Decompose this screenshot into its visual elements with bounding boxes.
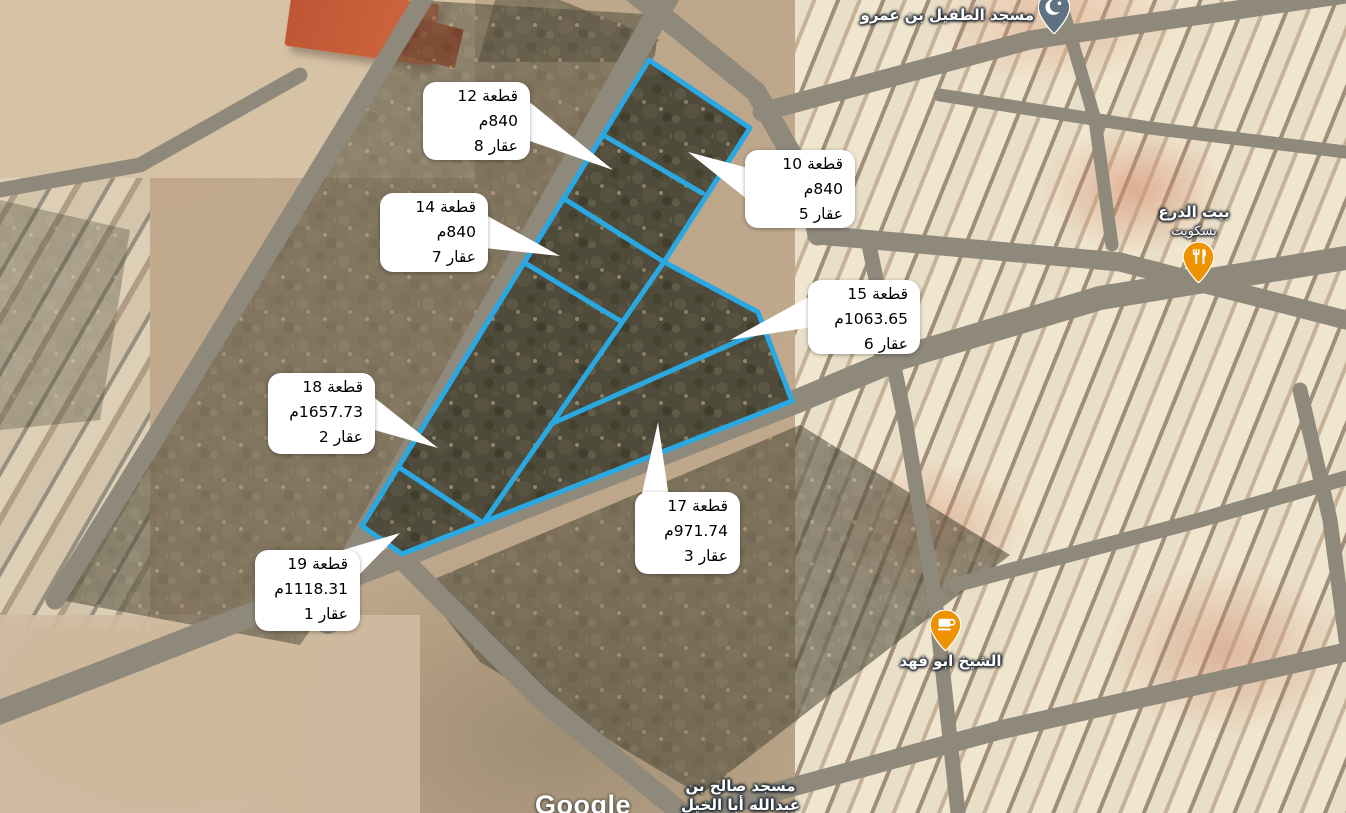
satellite-map[interactable]: قطعة 12 840م عقار 8 قطعة 10 840م عقار 5 … — [0, 0, 1346, 813]
restaurant-pin-icon[interactable] — [1183, 242, 1214, 283]
plot-deed: عقار 6 — [818, 332, 908, 357]
poi-label-sheikh-abu-fahd[interactable]: الشيخ ابو فهد — [893, 652, 1008, 671]
plot-area: 971.74م — [645, 519, 728, 544]
poi-label-mosque-tufail[interactable]: مسجد الطفيل بن عمرو — [861, 6, 1034, 25]
plot-number: قطعة 12 — [433, 84, 518, 109]
mosque-pin-icon[interactable] — [1038, 0, 1070, 34]
poi-label-bait-aldara[interactable]: بيت الدرع بسكويت — [1146, 203, 1242, 241]
plot-area: 840م — [755, 177, 843, 202]
cafe-pin-icon[interactable] — [930, 610, 961, 651]
plot-deed: عقار 8 — [433, 134, 518, 159]
plot-area: 1063.65م — [818, 307, 908, 332]
callout-plot-12: قطعة 12 840م عقار 8 — [423, 82, 530, 160]
plot-deed: عقار 2 — [278, 425, 363, 450]
plot-deed: عقار 7 — [390, 245, 476, 270]
plot-area: 1657.73م — [278, 400, 363, 425]
callout-plot-18: قطعة 18 1657.73م عقار 2 — [268, 373, 375, 454]
plot-area: 1118.31م — [265, 577, 348, 602]
plot-deed: عقار 5 — [755, 202, 843, 227]
poi-label-mosque-saleh[interactable]: مسجد صالح بن عبدالله أبا الخيل — [668, 777, 813, 813]
plot-deed: عقار 3 — [645, 544, 728, 569]
plot-area: 840م — [433, 109, 518, 134]
google-watermark[interactable]: Google — [535, 790, 631, 813]
callout-plot-14: قطعة 14 840م عقار 7 — [380, 193, 488, 272]
callout-plot-10: قطعة 10 840م عقار 5 — [745, 150, 855, 228]
plot-number: قطعة 18 — [278, 375, 363, 400]
callout-plot-15: قطعة 15 1063.65م عقار 6 — [808, 280, 920, 354]
plot-deed: عقار 1 — [265, 602, 348, 627]
plot-number: قطعة 19 — [265, 552, 348, 577]
plot-area: 840م — [390, 220, 476, 245]
plot-number: قطعة 17 — [645, 494, 728, 519]
plot-number: قطعة 14 — [390, 195, 476, 220]
callout-plot-17: قطعة 17 971.74م عقار 3 — [635, 492, 740, 574]
callout-plot-19: قطعة 19 1118.31م عقار 1 — [255, 550, 360, 631]
map-overlay — [0, 0, 1346, 813]
plot-number: قطعة 15 — [818, 282, 908, 307]
plot-number: قطعة 10 — [755, 152, 843, 177]
